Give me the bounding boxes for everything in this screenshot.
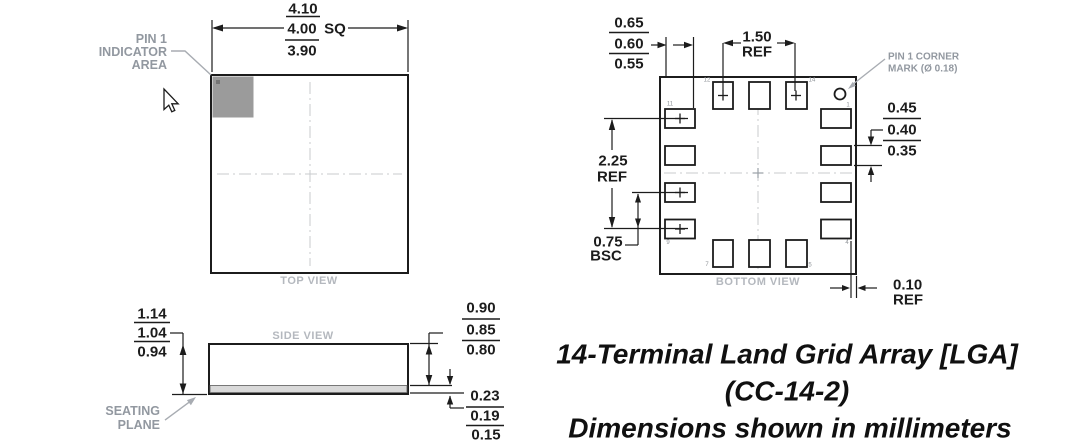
arrowhead-down-icon: [180, 384, 187, 395]
dim-land-nom: 0.19: [470, 408, 499, 425]
leader-line: [852, 59, 885, 85]
pad-6: [749, 240, 770, 267]
pin1-area-label-3: AREA: [132, 58, 167, 72]
dim-body-nom: 0.85: [466, 322, 495, 339]
leader-line: [165, 400, 192, 420]
arrowhead-down-icon: [609, 217, 615, 228]
dim-padwidth-min: 0.35: [887, 143, 916, 160]
side-view-label: SIDE VIEW: [272, 330, 333, 342]
dim-size-nom: 4.00: [287, 21, 316, 38]
dim-height-min: 0.94: [137, 344, 167, 361]
pad-4: [821, 220, 851, 239]
arrowhead-right-icon: [658, 42, 667, 48]
title-line-1: 14-Terminal Land Grid Array [LGA]: [556, 339, 1019, 370]
arrowhead-left-icon: [858, 285, 866, 291]
dim-height-nom: 1.04: [137, 325, 167, 342]
pin1-corner-mark: [835, 89, 846, 100]
pad-10: [665, 146, 695, 165]
arrowhead-right-icon: [842, 285, 850, 291]
dim-land-min: 0.15: [471, 427, 500, 443]
dim-span2-ref: REF: [742, 44, 772, 61]
arrowhead-left-icon: [723, 40, 733, 46]
arrowhead-up-icon: [635, 194, 641, 203]
arrowhead-up-icon: [868, 166, 874, 175]
pin-number-14: 14: [809, 78, 816, 84]
arrowhead-right-icon: [785, 40, 795, 46]
dim-size-min: 3.90: [287, 43, 316, 60]
dim-span3-ref: REF: [597, 169, 627, 186]
seating-plane-label-1: SEATING: [105, 404, 160, 418]
top-view: 4.10 4.00 SQ 3.90 PIN 1 INDICATOR AREA T…: [99, 1, 408, 288]
dim-body-min: 0.80: [466, 342, 495, 359]
dim-pitch-bsc: BSC: [590, 248, 622, 265]
pad-5: [786, 240, 807, 267]
arrowhead-up-icon: [426, 345, 433, 355]
arrowhead-up-icon: [609, 119, 615, 130]
pad-1: [821, 109, 851, 128]
pin1-area-label-2: INDICATOR: [99, 45, 167, 59]
arrowhead-up-icon: [447, 396, 453, 405]
dim-land-max: 0.23: [470, 388, 499, 405]
leader-arrowhead-icon: [187, 397, 196, 405]
pad-7: [713, 240, 733, 267]
mouse-cursor-icon: [164, 89, 178, 112]
arrowhead-down-icon: [868, 137, 874, 146]
arrowhead-down-icon: [447, 376, 453, 385]
leader-line: [171, 51, 211, 75]
drawing-canvas: 4.10 4.00 SQ 3.90 PIN 1 INDICATOR AREA T…: [0, 0, 1080, 443]
title-line-2: (CC-14-2): [725, 376, 849, 407]
title-line-3: Dimensions shown in millimeters: [568, 413, 1011, 443]
pin-number-11: 11: [667, 102, 674, 108]
dim-size-max: 4.10: [288, 1, 317, 18]
dim-padwidth-nom: 0.40: [887, 122, 916, 139]
pin1-mark-label-2: MARK (Ø 0.18): [888, 64, 957, 75]
pin-number-12: 12: [704, 78, 711, 84]
pad-2: [821, 146, 851, 165]
pad-13: [749, 82, 770, 109]
dim-padwidth-max: 0.45: [887, 100, 916, 117]
pin1-area-label-1: PIN 1: [136, 32, 167, 46]
seating-plane-label-2: PLANE: [118, 418, 160, 432]
bottom-view: 12 14 11 1 9 7 5 4 0.65 0.60 0.55 1.50 R…: [590, 15, 960, 309]
package-outline-drawing: 4.10 4.00 SQ 3.90 PIN 1 INDICATOR AREA T…: [0, 0, 1080, 443]
dim-edgegap-ref: REF: [893, 292, 923, 309]
pin1-indicator-dot: [216, 80, 220, 84]
dim-height-max: 1.14: [137, 306, 167, 323]
dim-span3-value: 2.25: [598, 153, 627, 170]
arrowhead-down-icon: [426, 375, 433, 385]
dim-size-sq: SQ: [324, 21, 346, 38]
pad-3: [821, 183, 851, 202]
arrowhead-right-icon: [397, 25, 408, 32]
pin1-mark-label-1: PIN 1 CORNER: [888, 52, 960, 63]
arrowhead-down-icon: [635, 219, 641, 228]
dim-body-max: 0.90: [466, 300, 495, 317]
bottom-view-label: BOTTOM VIEW: [716, 276, 800, 288]
dim-padlen-min: 0.55: [614, 56, 643, 73]
side-view: SIDE VIEW 1.14 1.04 0.94 SEATING PLANE 0…: [105, 300, 504, 443]
arrowhead-up-icon: [180, 345, 187, 356]
side-view-land-band: [210, 386, 407, 393]
dim-padlen-max: 0.65: [614, 15, 643, 32]
title-block: 14-Terminal Land Grid Array [LGA] (CC-14…: [556, 339, 1019, 443]
arrowhead-left-icon: [212, 25, 223, 32]
top-view-label: TOP VIEW: [280, 275, 338, 287]
dim-padlen-nom: 0.60: [614, 36, 643, 53]
arrowhead-right-icon: [684, 42, 693, 48]
